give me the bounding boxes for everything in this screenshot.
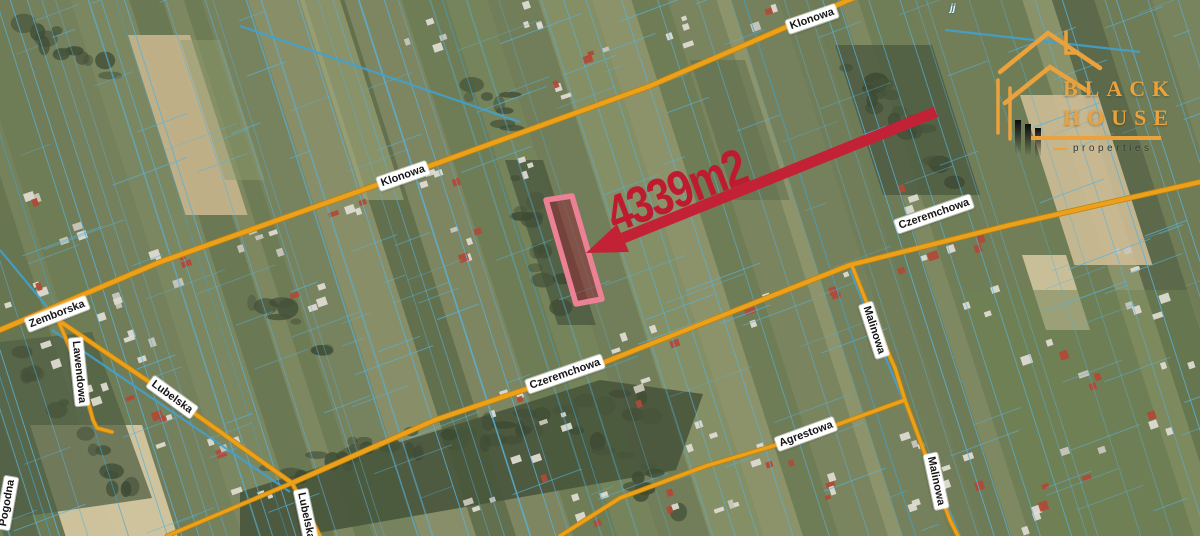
- map-stage: KlonowaKlonowaCzeremchowaCzeremchowaZemb…: [0, 0, 1200, 536]
- brand-logo: BLACK HOUSE properties: [975, 20, 1195, 164]
- logo-word-black: BLACK: [1063, 76, 1176, 102]
- map-corner-text: jj: [950, 3, 956, 14]
- logo-dash: [1053, 148, 1067, 150]
- logo-word-house: HOUSE: [1063, 105, 1175, 131]
- logo-underline: [1031, 136, 1161, 140]
- logo-word-properties: properties: [1073, 143, 1152, 154]
